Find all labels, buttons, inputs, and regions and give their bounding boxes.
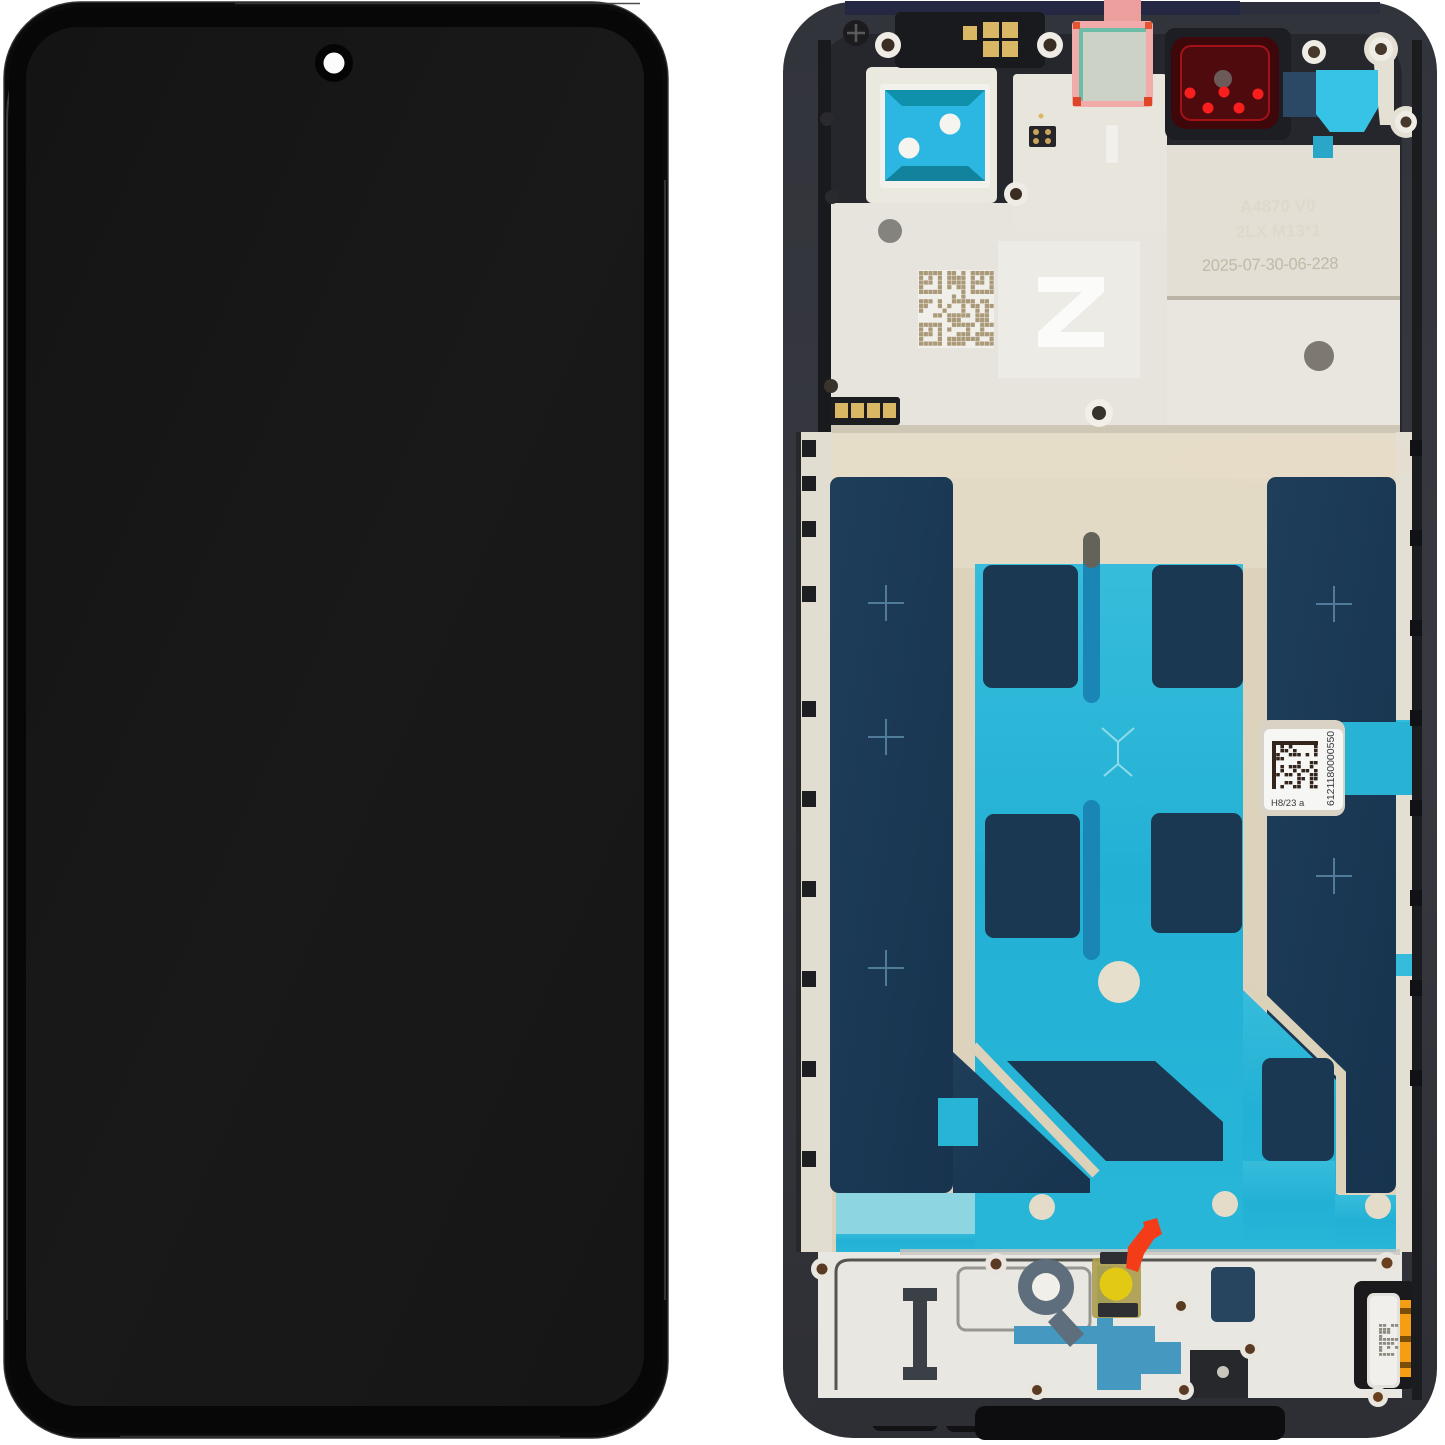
svg-text:2025-07-30-06-228: 2025-07-30-06-228 bbox=[1202, 255, 1339, 275]
svg-text:H8/23 a: H8/23 a bbox=[1271, 798, 1305, 809]
svg-text:A4870 V0: A4870 V0 bbox=[1240, 196, 1316, 216]
svg-text:6121180000550: 6121180000550 bbox=[1325, 731, 1337, 806]
svg-text:2LX M13*1: 2LX M13*1 bbox=[1236, 221, 1321, 241]
